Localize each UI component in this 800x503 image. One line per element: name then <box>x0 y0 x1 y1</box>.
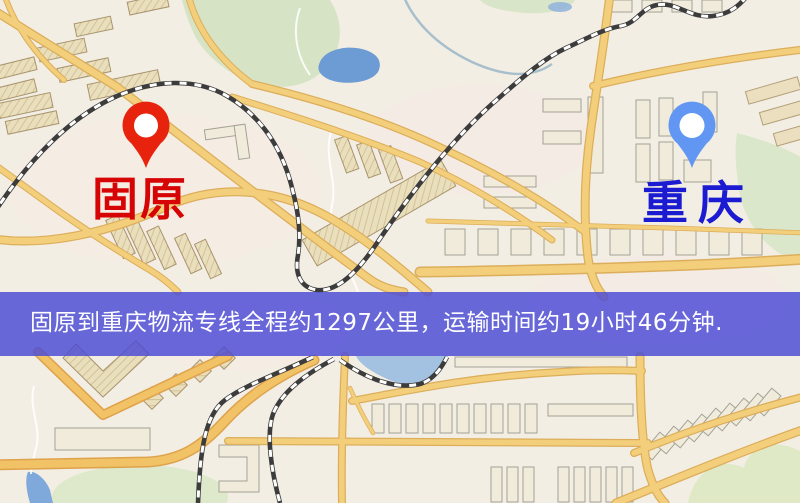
route-info-banner: 固原到重庆物流专线全程约1297公里，运输时间约19小时46分钟. <box>0 292 800 356</box>
logistics-route-map: 固原 重庆 固原到重庆物流专线全程约1297公里，运输时间约19小时46分钟. <box>0 0 800 503</box>
destination-city-label: 重庆 <box>642 180 754 226</box>
origin-city-label: 固原 <box>92 176 188 222</box>
map-canvas <box>0 0 800 503</box>
route-info-text: 固原到重庆物流专线全程约1297公里，运输时间约19小时46分钟. <box>30 303 723 337</box>
